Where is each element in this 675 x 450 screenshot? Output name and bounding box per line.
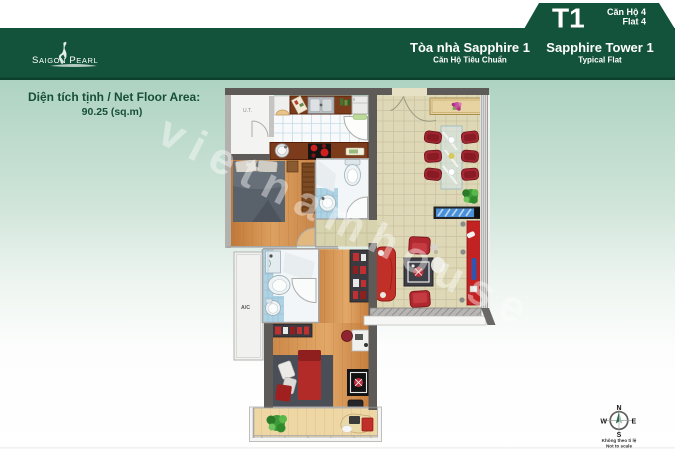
svg-text:Flat 4: Flat 4 [622,17,646,27]
svg-text:A/C: A/C [241,305,250,311]
svg-text:Không theo tỉ lệ: Không theo tỉ lệ [602,438,637,443]
svg-text:Sapphire Tower 1: Sapphire Tower 1 [546,40,653,55]
svg-text:E: E [632,419,637,426]
svg-text:Căn Hộ Tiêu Chuẩn: Căn Hộ Tiêu Chuẩn [433,56,507,65]
svg-text:90.25 (sq.m): 90.25 (sq.m) [82,106,143,118]
svg-text:Typical Flat: Typical Flat [578,56,622,65]
svg-text:Diện tích tịnh / Net Floor Are: Diện tích tịnh / Net Floor Area: [28,90,200,104]
svg-text:Not to scale: Not to scale [606,444,632,449]
svg-text:Tòa nhà Sapphire 1: Tòa nhà Sapphire 1 [410,40,530,55]
svg-text:N: N [616,405,621,412]
svg-text:U.T.: U.T. [243,108,252,114]
svg-text:T1: T1 [552,3,585,34]
svg-text:Căn Hộ 4: Căn Hộ 4 [607,7,646,17]
svg-text:W: W [600,419,607,426]
